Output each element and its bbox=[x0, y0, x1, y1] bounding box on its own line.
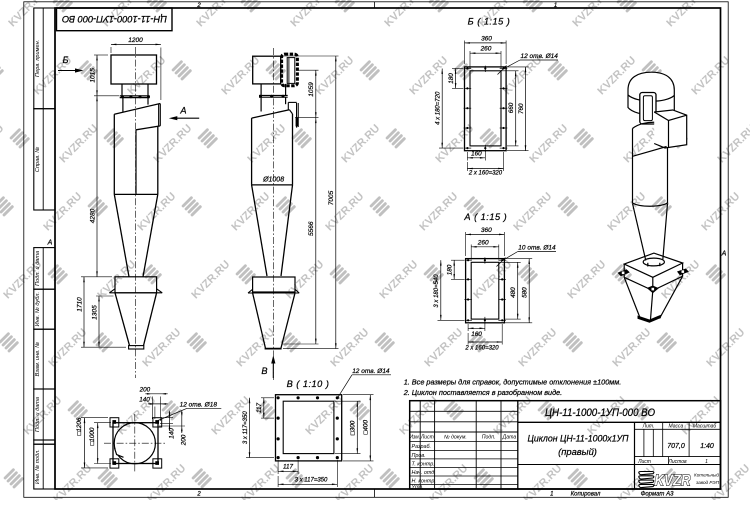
svg-text:2. Циклон поставляется в разоб: 2. Циклон поставляется в разобранном вид… bbox=[403, 388, 563, 397]
svg-text:3 x 117=350: 3 x 117=350 bbox=[243, 411, 249, 444]
svg-text:360: 360 bbox=[481, 35, 492, 42]
svg-text:Лист: Лист bbox=[420, 435, 434, 441]
svg-text:завод РЭП: завод РЭП bbox=[695, 480, 720, 485]
svg-text:□1000: □1000 bbox=[89, 427, 96, 445]
svg-text:5566: 5566 bbox=[308, 221, 315, 236]
svg-text:Разраб.: Разраб. bbox=[412, 444, 432, 450]
svg-text:2 x 160=320: 2 x 160=320 bbox=[464, 345, 499, 351]
svg-text:180: 180 bbox=[447, 264, 454, 275]
svg-text:Подп. и дата: Подп. и дата bbox=[35, 397, 41, 432]
svg-text:Лит.: Лит. bbox=[642, 424, 655, 430]
svg-text:Котельный: Котельный bbox=[694, 472, 719, 478]
svg-text:117: 117 bbox=[283, 464, 294, 471]
svg-text:□1206: □1206 bbox=[76, 417, 83, 435]
svg-text:1:40: 1:40 bbox=[700, 443, 714, 450]
svg-text:KVZR: KVZR bbox=[655, 473, 692, 490]
svg-text:140: 140 bbox=[169, 428, 176, 439]
svg-text:200: 200 bbox=[181, 434, 188, 446]
svg-text:7005: 7005 bbox=[328, 190, 335, 205]
svg-text:В: В bbox=[261, 366, 267, 376]
svg-text:1305: 1305 bbox=[91, 305, 98, 320]
svg-text:3 x 117=350: 3 x 117=350 bbox=[295, 478, 328, 484]
svg-text:12 отв. Ø14: 12 отв. Ø14 bbox=[352, 368, 390, 375]
svg-text:□400: □400 bbox=[363, 420, 370, 435]
svg-text:480: 480 bbox=[510, 287, 517, 298]
svg-text:Справ. №: Справ. № bbox=[35, 147, 41, 172]
svg-text:2: 2 bbox=[196, 3, 201, 9]
svg-text:3 x 180=540: 3 x 180=540 bbox=[434, 274, 440, 308]
svg-text:2 x 160=320: 2 x 160=320 bbox=[468, 170, 503, 176]
svg-text:660: 660 bbox=[508, 102, 515, 113]
svg-text:ЦН-11-1000-1УП-000 ВО: ЦН-11-1000-1УП-000 ВО bbox=[61, 14, 167, 25]
svg-text:Б: Б bbox=[63, 55, 69, 65]
svg-text:1: 1 bbox=[705, 459, 708, 465]
svg-text:200: 200 bbox=[139, 387, 151, 394]
svg-text:12 отв. Ø14: 12 отв. Ø14 bbox=[521, 53, 559, 60]
svg-text:□300: □300 bbox=[350, 420, 357, 435]
svg-text:2: 2 bbox=[196, 491, 201, 497]
svg-text:Ø1008: Ø1008 bbox=[262, 177, 284, 184]
svg-text:117: 117 bbox=[256, 402, 263, 413]
svg-text:Инв. № дубл.: Инв. № дубл. bbox=[35, 292, 41, 326]
svg-text:Инв. № подл.: Инв. № подл. bbox=[35, 449, 41, 484]
svg-text:Листов: Листов bbox=[667, 459, 687, 465]
svg-text:Утв.: Утв. bbox=[411, 485, 424, 491]
svg-text:360: 360 bbox=[481, 227, 492, 234]
svg-text:760: 760 bbox=[518, 103, 525, 114]
svg-text:Масса: Масса bbox=[669, 424, 684, 430]
svg-text:Формат А3: Формат А3 bbox=[641, 491, 674, 497]
svg-text:260: 260 bbox=[477, 239, 489, 246]
svg-text:Изм.: Изм. bbox=[409, 435, 420, 441]
svg-text:Взам. инв. №: Взам. инв. № bbox=[35, 342, 41, 377]
svg-text:1. Все размеры для справок, до: 1. Все размеры для справок, допустимые о… bbox=[404, 377, 622, 386]
svg-text:ЦН-11-1000-1УП-000 ВО: ЦН-11-1000-1УП-000 ВО bbox=[545, 407, 656, 419]
svg-text:Лист: Лист bbox=[637, 459, 651, 465]
svg-text:4 x 180=720: 4 x 180=720 bbox=[436, 91, 442, 125]
svg-text:160: 160 bbox=[471, 150, 482, 157]
svg-text:1: 1 bbox=[554, 3, 557, 9]
svg-text:580: 580 bbox=[522, 287, 529, 298]
svg-text:Н. контр.: Н. контр. bbox=[412, 478, 436, 484]
svg-text:А: А bbox=[179, 106, 186, 116]
svg-text:1059: 1059 bbox=[308, 82, 315, 97]
svg-text:140: 140 bbox=[139, 397, 150, 404]
svg-text:Подп.: Подп. bbox=[482, 435, 496, 441]
svg-text:12 отв. Ø18: 12 отв. Ø18 bbox=[180, 401, 218, 408]
svg-text:А: А bbox=[47, 240, 53, 247]
svg-text:707,0: 707,0 bbox=[667, 443, 685, 450]
svg-text:180: 180 bbox=[448, 73, 455, 84]
svg-text:Циклон ЦН-11-1000х1УП: Циклон ЦН-11-1000х1УП bbox=[528, 433, 629, 444]
svg-text:Подп. и дата: Подп. и дата bbox=[35, 251, 41, 286]
svg-text:4280: 4280 bbox=[89, 208, 96, 223]
svg-text:Дата: Дата bbox=[502, 435, 517, 441]
svg-text:Копировал: Копировал bbox=[571, 491, 601, 497]
svg-text:№ докум.: № докум. bbox=[444, 435, 467, 441]
svg-text:Перв. примен.: Перв. примен. bbox=[35, 40, 41, 77]
svg-text:260: 260 bbox=[480, 46, 492, 53]
svg-text:В ( 1:10 ): В ( 1:10 ) bbox=[287, 379, 330, 389]
svg-text:1710: 1710 bbox=[76, 297, 83, 312]
svg-text:Т. контр.: Т. контр. bbox=[412, 461, 435, 467]
svg-text:(правый): (правый) bbox=[558, 446, 597, 457]
svg-text:Нач. отд.: Нач. отд. bbox=[412, 470, 436, 476]
svg-text:Масштаб: Масштаб bbox=[693, 424, 717, 430]
svg-text:Б ( 1:15 ): Б ( 1:15 ) bbox=[468, 17, 511, 27]
svg-text:1015: 1015 bbox=[89, 68, 96, 83]
svg-text:10 отв. Ø14: 10 отв. Ø14 bbox=[518, 245, 556, 252]
svg-text:А ( 1:15 ): А ( 1:15 ) bbox=[463, 212, 507, 222]
svg-text:А: А bbox=[721, 251, 727, 258]
svg-text:1200: 1200 bbox=[128, 37, 143, 44]
svg-text:160: 160 bbox=[471, 331, 482, 338]
svg-text:1: 1 bbox=[550, 491, 553, 497]
svg-text:Пров.: Пров. bbox=[412, 453, 426, 459]
